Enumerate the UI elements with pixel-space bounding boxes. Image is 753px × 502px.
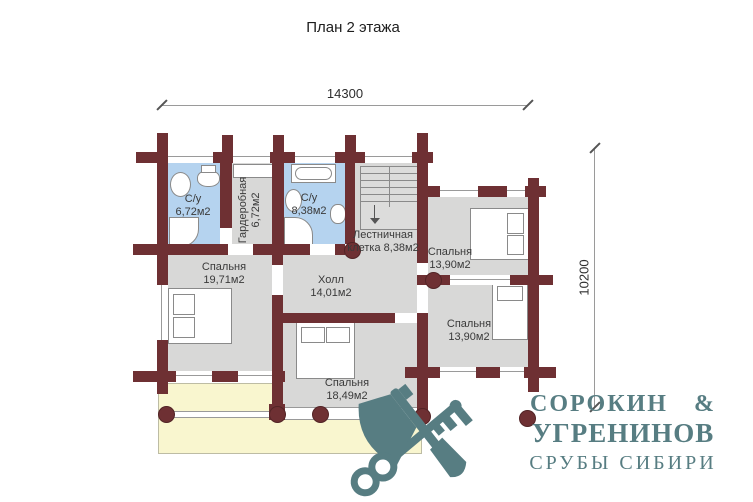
wall-segment	[528, 178, 539, 186]
dimension-line-top	[162, 105, 528, 106]
door-opening	[417, 285, 428, 313]
wall-segment	[510, 275, 553, 285]
wall-segment	[335, 152, 365, 163]
dimension-tick	[589, 142, 600, 153]
window	[440, 187, 478, 196]
balcony-railing	[168, 411, 272, 418]
wall-segment	[157, 133, 168, 152]
room-name: Лестничная	[341, 229, 425, 242]
wall-segment	[440, 275, 450, 285]
door-opening	[395, 313, 417, 323]
wall-segment	[273, 135, 284, 152]
wall-segment	[283, 313, 405, 323]
log-end-post	[425, 272, 442, 289]
window	[238, 372, 272, 381]
room-label-bathroom-2: С/у 8,38м2	[281, 192, 337, 218]
window	[176, 372, 212, 381]
room-area: 13,90м2	[438, 331, 500, 344]
window	[233, 153, 270, 162]
bathtub-basin	[295, 167, 332, 180]
door-opening	[272, 265, 283, 295]
wall-segment	[270, 152, 295, 163]
wall-segment	[272, 295, 283, 415]
pillow	[173, 294, 195, 315]
room-label-stairwell: Лестничная клетка 8,38м2	[341, 229, 425, 255]
window	[295, 153, 335, 162]
wall-segment	[213, 152, 233, 163]
room-area: клетка 8,38м2	[341, 242, 425, 255]
window	[158, 285, 167, 340]
dimension-line-right	[594, 148, 595, 408]
wall-segment	[157, 382, 168, 394]
floor-plan-page: План 2 этажа 14300 10200	[0, 0, 753, 502]
axe-icon	[346, 374, 470, 502]
stair-divider	[389, 167, 390, 207]
window	[168, 153, 213, 162]
logo-company-line1: СОРОКИН &	[498, 390, 748, 418]
wall-segment	[222, 135, 233, 152]
pillow	[326, 327, 350, 343]
room-area: 13,90м2	[419, 259, 481, 272]
room-label-wardrobe: Гардеробная 6,72м2	[208, 168, 292, 252]
logo-axe-key-icon	[320, 360, 512, 502]
room-label-hall: Холл 14,01м2	[299, 274, 363, 300]
window	[450, 276, 510, 285]
room-area: 14,01м2	[299, 287, 363, 300]
wall-segment	[478, 186, 507, 197]
logo-tagline: СРУБЫ СИБИРИ	[498, 451, 748, 476]
dimension-label-width: 14300	[162, 86, 528, 101]
logo-text: СОРОКИН & УГРЕНИНОВ СРУБЫ СИБИРИ	[498, 390, 748, 476]
window	[365, 153, 412, 162]
room-area: 8,38м2	[281, 205, 337, 218]
stair-arrow-head	[370, 218, 380, 229]
room-name: Гардеробная	[237, 168, 250, 252]
pillow	[497, 286, 523, 301]
wall-segment	[133, 371, 176, 382]
room-name: Холл	[299, 274, 363, 287]
room-area: 6,72м2	[250, 168, 263, 252]
bathtub-icon	[291, 164, 336, 183]
room-area: 19,71м2	[194, 274, 254, 287]
window	[507, 187, 525, 196]
dimension-label-height: 10200	[577, 250, 592, 306]
pillow	[507, 235, 524, 255]
bed-icon	[168, 288, 232, 344]
room-name: Спальня	[194, 261, 254, 274]
logo-company-line2: УГРЕНИНОВ	[498, 418, 748, 449]
wall-segment	[345, 135, 356, 152]
wall-segment	[524, 367, 556, 378]
room-name: Спальня	[419, 246, 481, 259]
room-name: Спальня	[438, 318, 500, 331]
pillow	[173, 317, 195, 338]
room-name: С/у	[281, 192, 337, 205]
log-end-post	[158, 406, 175, 423]
room-label-bedroom-bottom-right: Спальня 13,90м2	[438, 318, 500, 344]
page-title: План 2 этажа	[253, 19, 453, 36]
wall-segment	[212, 371, 238, 382]
stair-arrow-stem	[374, 205, 375, 219]
log-end-post	[269, 406, 286, 423]
room-label-bedroom-top-right: Спальня 13,90м2	[419, 246, 481, 272]
pillow	[507, 213, 524, 234]
pillow	[301, 327, 325, 343]
room-label-bedroom-left: Спальня 19,71м2	[194, 261, 254, 287]
stairs-icon	[360, 166, 419, 230]
door-opening	[310, 244, 335, 255]
wall-segment	[272, 255, 283, 265]
